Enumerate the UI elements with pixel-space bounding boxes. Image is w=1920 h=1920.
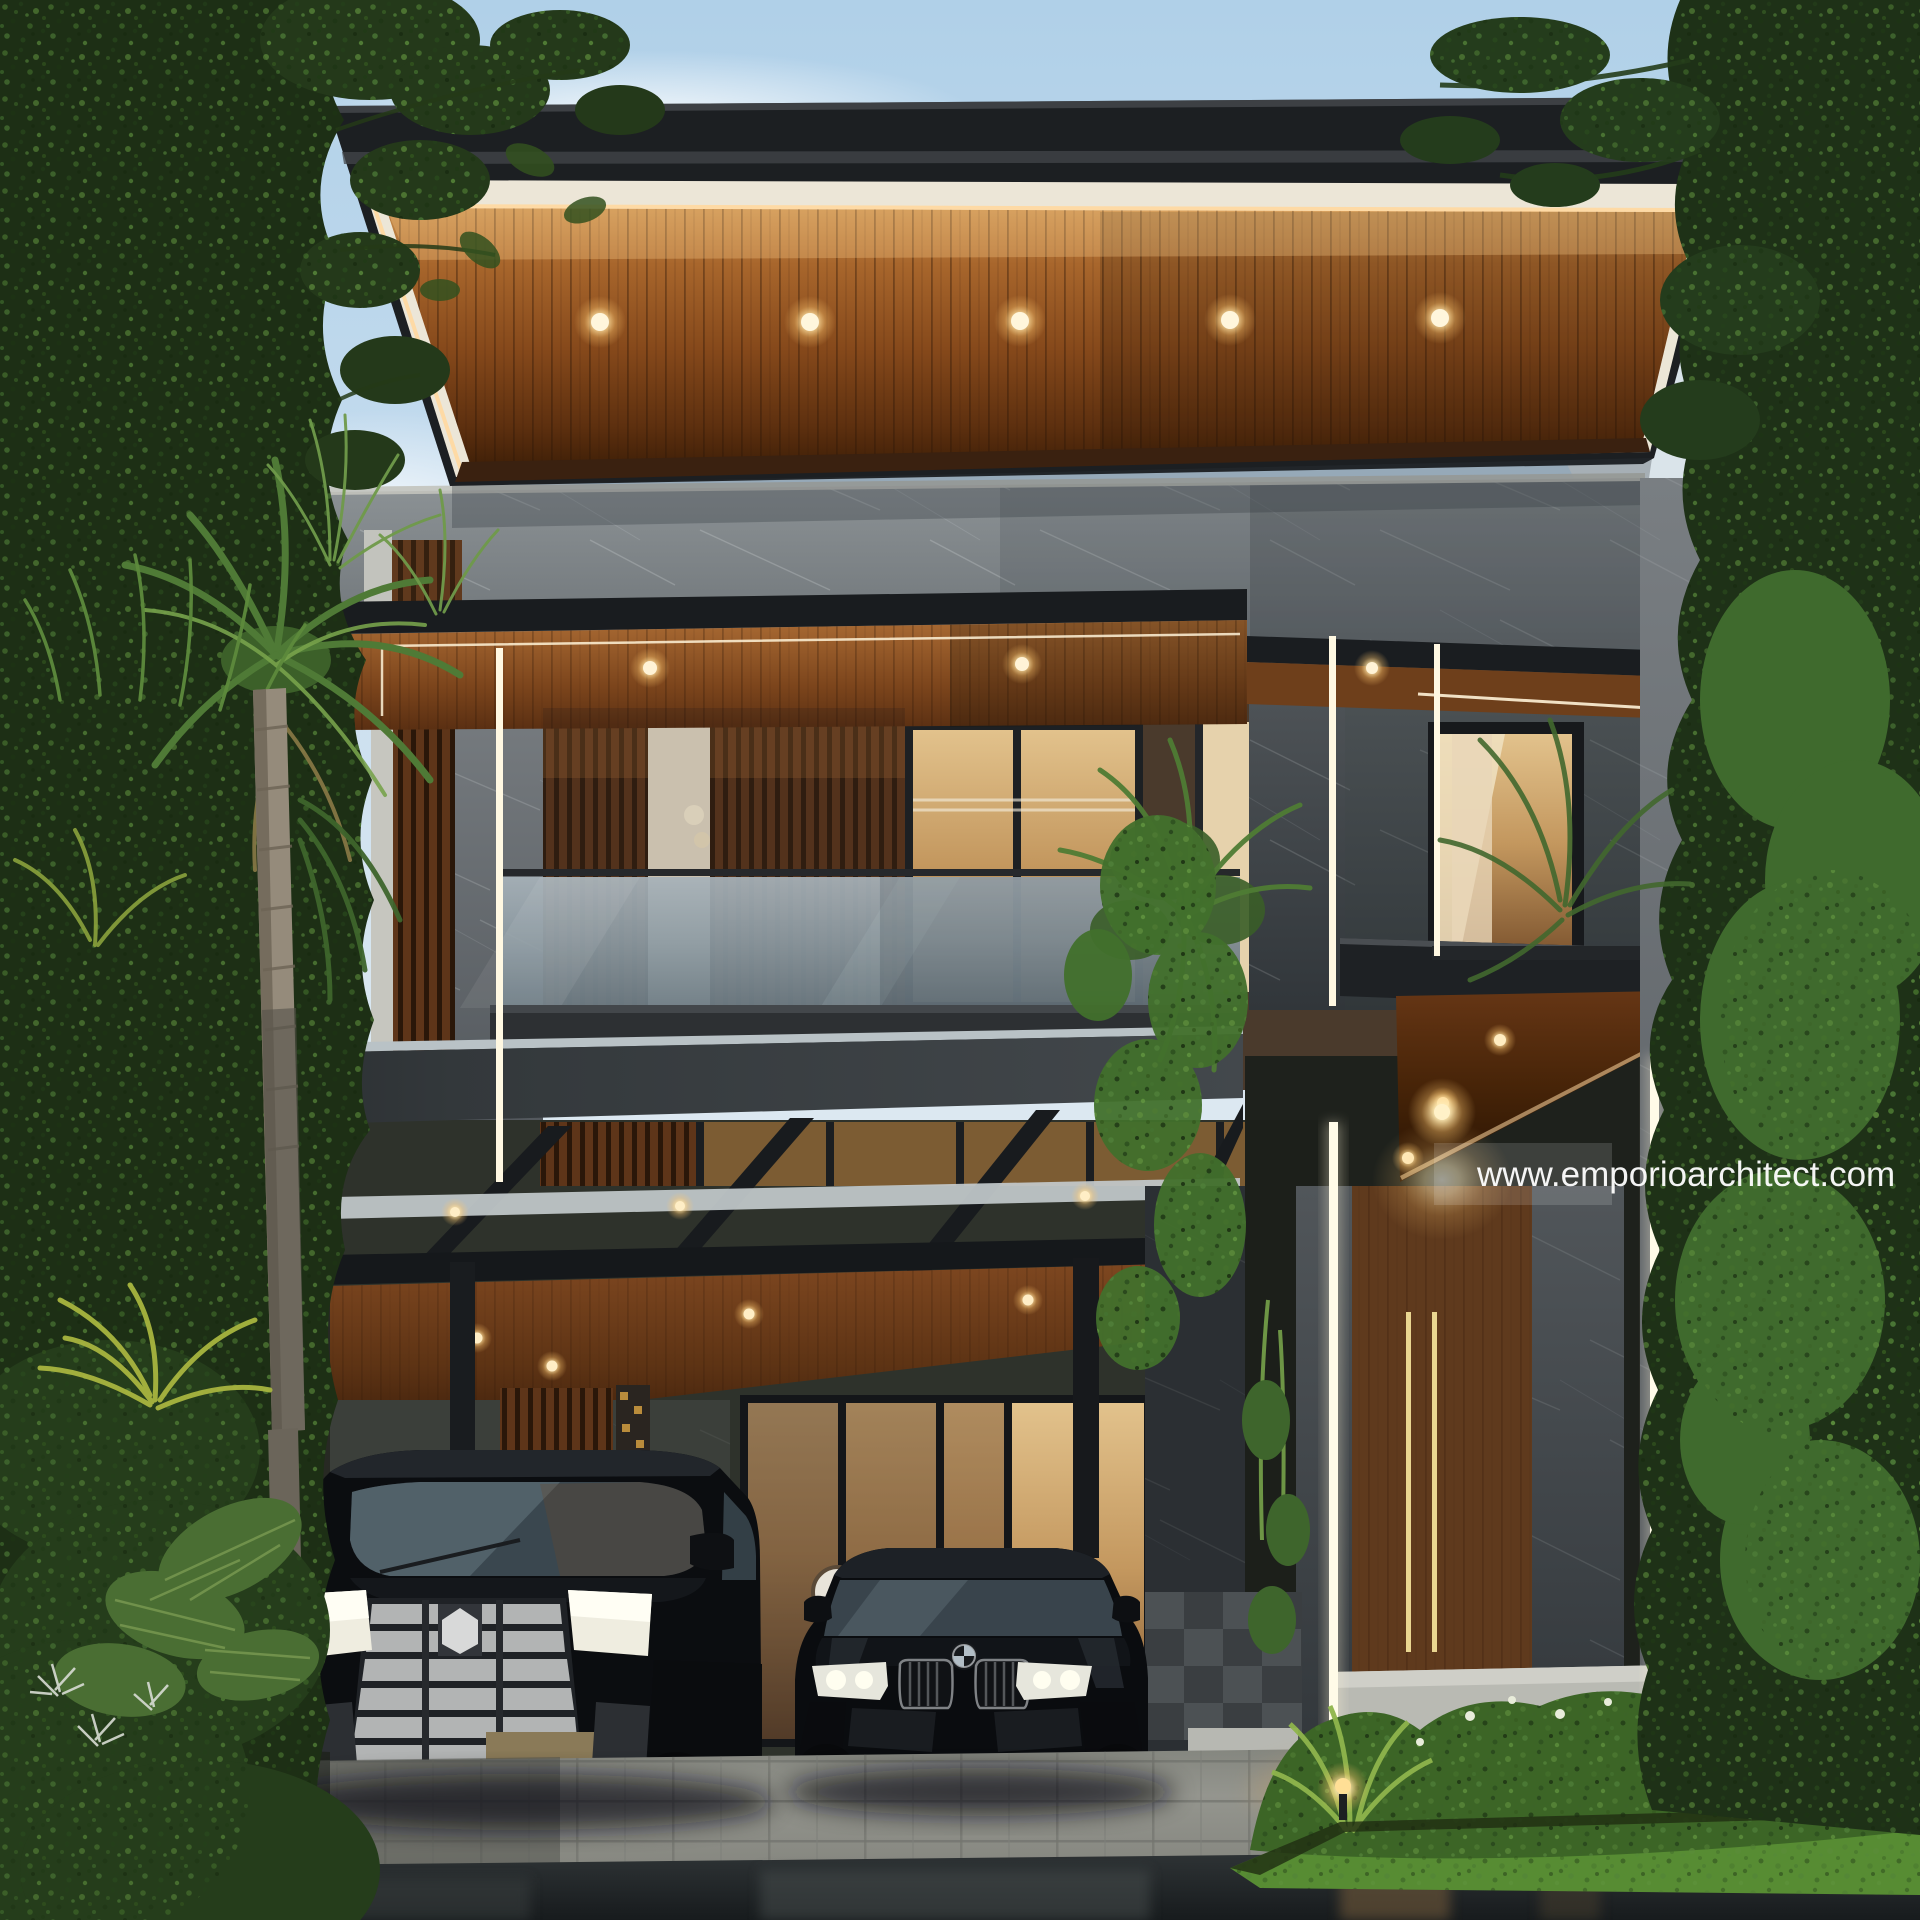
svg-text:www.emporioarchitect.com: www.emporioarchitect.com <box>1476 1155 1895 1194</box>
